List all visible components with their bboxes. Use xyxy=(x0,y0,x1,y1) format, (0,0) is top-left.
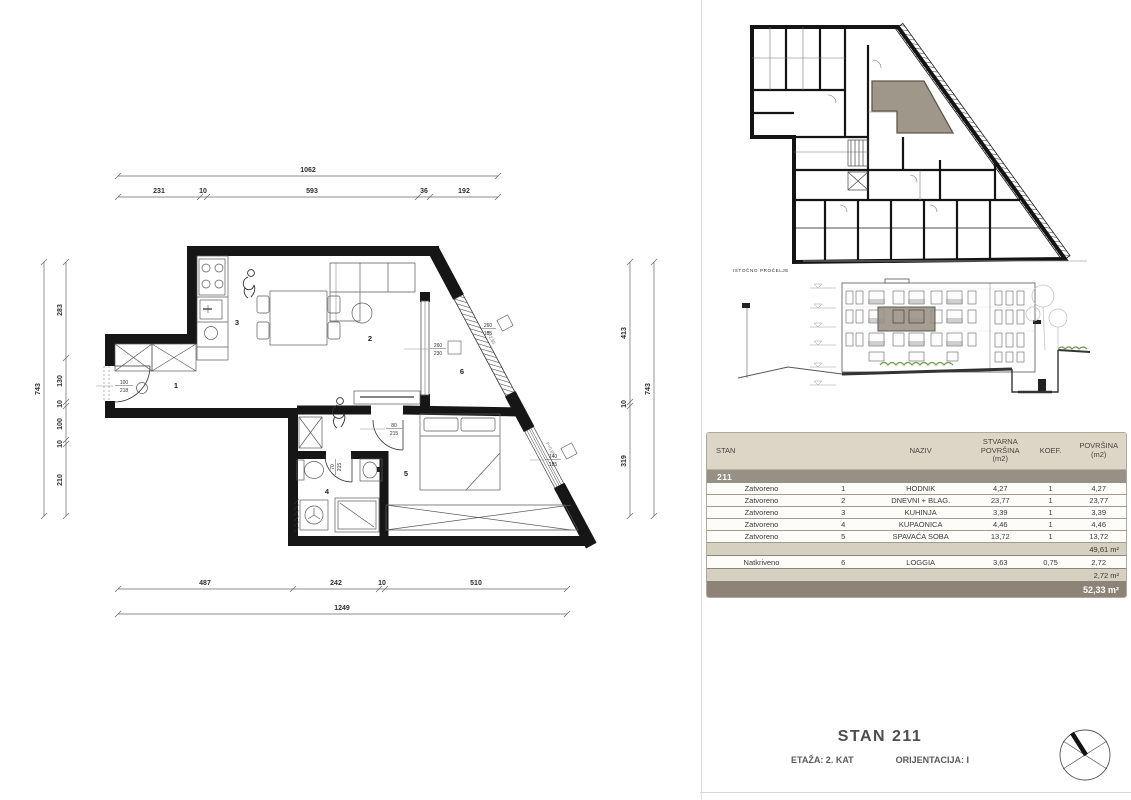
entrance-opening xyxy=(104,366,109,401)
svg-text:230: 230 xyxy=(434,351,443,357)
svg-text:36: 36 xyxy=(420,188,428,195)
dim-top-total: 1062 xyxy=(300,167,316,174)
title-block: STAN 211 ETAŽA: 2. KAT ORIJENTACIJA: I xyxy=(700,728,1060,765)
coffee-table xyxy=(352,303,372,323)
table-row: Zatvoreno1 HODNIK4,27 14,27 xyxy=(707,483,1126,495)
svg-text:231: 231 xyxy=(153,188,165,195)
svg-text:487: 487 xyxy=(199,580,211,587)
svg-text:80: 80 xyxy=(391,423,397,429)
unit-band: 211 xyxy=(707,470,1126,483)
entry-decor xyxy=(137,383,148,394)
level-markers xyxy=(810,284,836,385)
svg-text:10: 10 xyxy=(378,580,386,587)
svg-text:70: 70 xyxy=(330,464,336,470)
shower xyxy=(335,498,379,532)
svg-text:10: 10 xyxy=(621,400,628,408)
svg-text:10: 10 xyxy=(57,400,64,408)
col-naziv: NAZIV xyxy=(870,447,971,456)
washing-machine xyxy=(300,500,328,530)
tv-cabinet xyxy=(354,391,420,404)
hall-closets xyxy=(115,344,196,371)
svg-text:260: 260 xyxy=(434,343,443,349)
sofa xyxy=(330,263,415,321)
elevation-drawing: ISTOČNO PROČELJE xyxy=(700,258,1131,428)
svg-text:130: 130 xyxy=(57,375,64,387)
col-stvarna: STVARNA POVRŠINA (m2) xyxy=(971,438,1030,464)
floor-label: ETAŽA: 2. KAT xyxy=(791,755,854,765)
svg-text:10: 10 xyxy=(57,440,64,448)
area-table: STAN NAZIV STVARNA POVRŠINA (m2) KOEF. P… xyxy=(706,432,1127,598)
kitchen-counter xyxy=(197,256,228,360)
lamp-post xyxy=(742,303,750,378)
dim-left-total: 743 xyxy=(35,383,42,395)
toilet xyxy=(297,460,324,480)
col-koef: KOEF. xyxy=(1030,447,1072,456)
elevation-title: ISTOČNO PROČELJE xyxy=(733,267,789,273)
total-area: 52,33 m² xyxy=(707,582,1126,597)
svg-text:215: 215 xyxy=(337,463,343,472)
key-plan-drawing xyxy=(700,0,1131,265)
table-row-covered: Natkriveno6 LOGGIA3,63 0,752,72 xyxy=(707,556,1126,569)
svg-text:100: 100 xyxy=(57,418,64,430)
hall-closet-2 xyxy=(299,417,322,448)
room-label-spavaca: 5 xyxy=(404,469,408,478)
loggia-railing xyxy=(454,295,515,397)
entrance-size-label: 100 218 xyxy=(96,380,133,394)
floor-plan-drawing: P=2,85 P=0,85 xyxy=(0,0,700,800)
loggia-rail-size-label: 260 185 xyxy=(480,315,513,337)
diagonal-wall: P=2,85 P=0,85 xyxy=(428,244,602,549)
room-label-hodnik: 1 xyxy=(174,381,178,390)
col-stan: STAN xyxy=(707,447,816,456)
orientation-label: ORIJENTACIJA: I xyxy=(896,755,969,765)
table-row: Zatvoreno2 DNEVNI + BLAG.23,77 123,77 xyxy=(707,495,1126,507)
svg-text:593: 593 xyxy=(306,188,318,195)
page-title: STAN 211 xyxy=(700,728,1060,746)
loggia-glass-size-label: 260 230 xyxy=(404,341,461,357)
dim-bottom-total: 1249 xyxy=(334,605,350,612)
sheet-bottom-rule xyxy=(700,792,1131,793)
svg-text:260: 260 xyxy=(484,323,493,329)
svg-text:192: 192 xyxy=(458,188,470,195)
loggia-glass-wall xyxy=(421,301,429,395)
svg-text:319: 319 xyxy=(621,455,628,467)
svg-text:140: 140 xyxy=(549,454,558,460)
svg-text:210: 210 xyxy=(57,474,64,486)
bathroom-sink xyxy=(360,459,382,481)
closed-subtotal: 49,61 m² xyxy=(707,543,1126,556)
svg-text:218: 218 xyxy=(120,388,129,394)
room-label-kuhinja: 3 xyxy=(235,318,239,327)
room-label-dnevni: 2 xyxy=(368,334,372,343)
svg-text:100: 100 xyxy=(120,380,129,386)
svg-text:185: 185 xyxy=(549,462,558,468)
svg-text:215: 215 xyxy=(390,431,399,437)
col-povrsina: POVRŠINA (m2) xyxy=(1072,442,1126,459)
room-label-kupaonica: 4 xyxy=(325,487,330,496)
north-compass-icon xyxy=(1050,722,1122,790)
svg-text:510: 510 xyxy=(470,580,482,587)
svg-text:242: 242 xyxy=(330,580,342,587)
svg-text:185: 185 xyxy=(484,331,493,337)
table-row: Zatvoreno5 SPAVAĆA SOBA13,72 113,72 xyxy=(707,531,1126,543)
bedroom-door-size-label: 80 215 xyxy=(360,423,402,437)
table-row: Zatvoreno3 KUHINJA3,39 13,39 xyxy=(707,507,1126,519)
covered-subtotal: 2,72 m² xyxy=(707,569,1126,582)
bedroom-door xyxy=(373,420,403,450)
svg-text:283: 283 xyxy=(57,304,64,316)
room-label-loggia: 6 xyxy=(460,367,464,376)
bed xyxy=(420,414,500,490)
doors xyxy=(114,366,403,482)
bedroom-window xyxy=(525,427,564,488)
svg-text:413: 413 xyxy=(621,327,628,339)
wardrobe xyxy=(386,505,578,530)
dining-table xyxy=(257,291,340,345)
person-figure-kitchen xyxy=(243,270,254,298)
area-table-header: STAN NAZIV STVARNA POVRŠINA (m2) KOEF. P… xyxy=(707,433,1126,470)
dimension-lines xyxy=(41,173,657,617)
table-row: Zatvoreno4 KUPAONICA4,46 14,46 xyxy=(707,519,1126,531)
svg-text:10: 10 xyxy=(199,188,207,195)
plan-sheet: P=2,85 P=0,85 xyxy=(0,0,1131,800)
dim-right-total: 743 xyxy=(645,383,652,395)
elevation-unit-highlight xyxy=(878,307,935,331)
